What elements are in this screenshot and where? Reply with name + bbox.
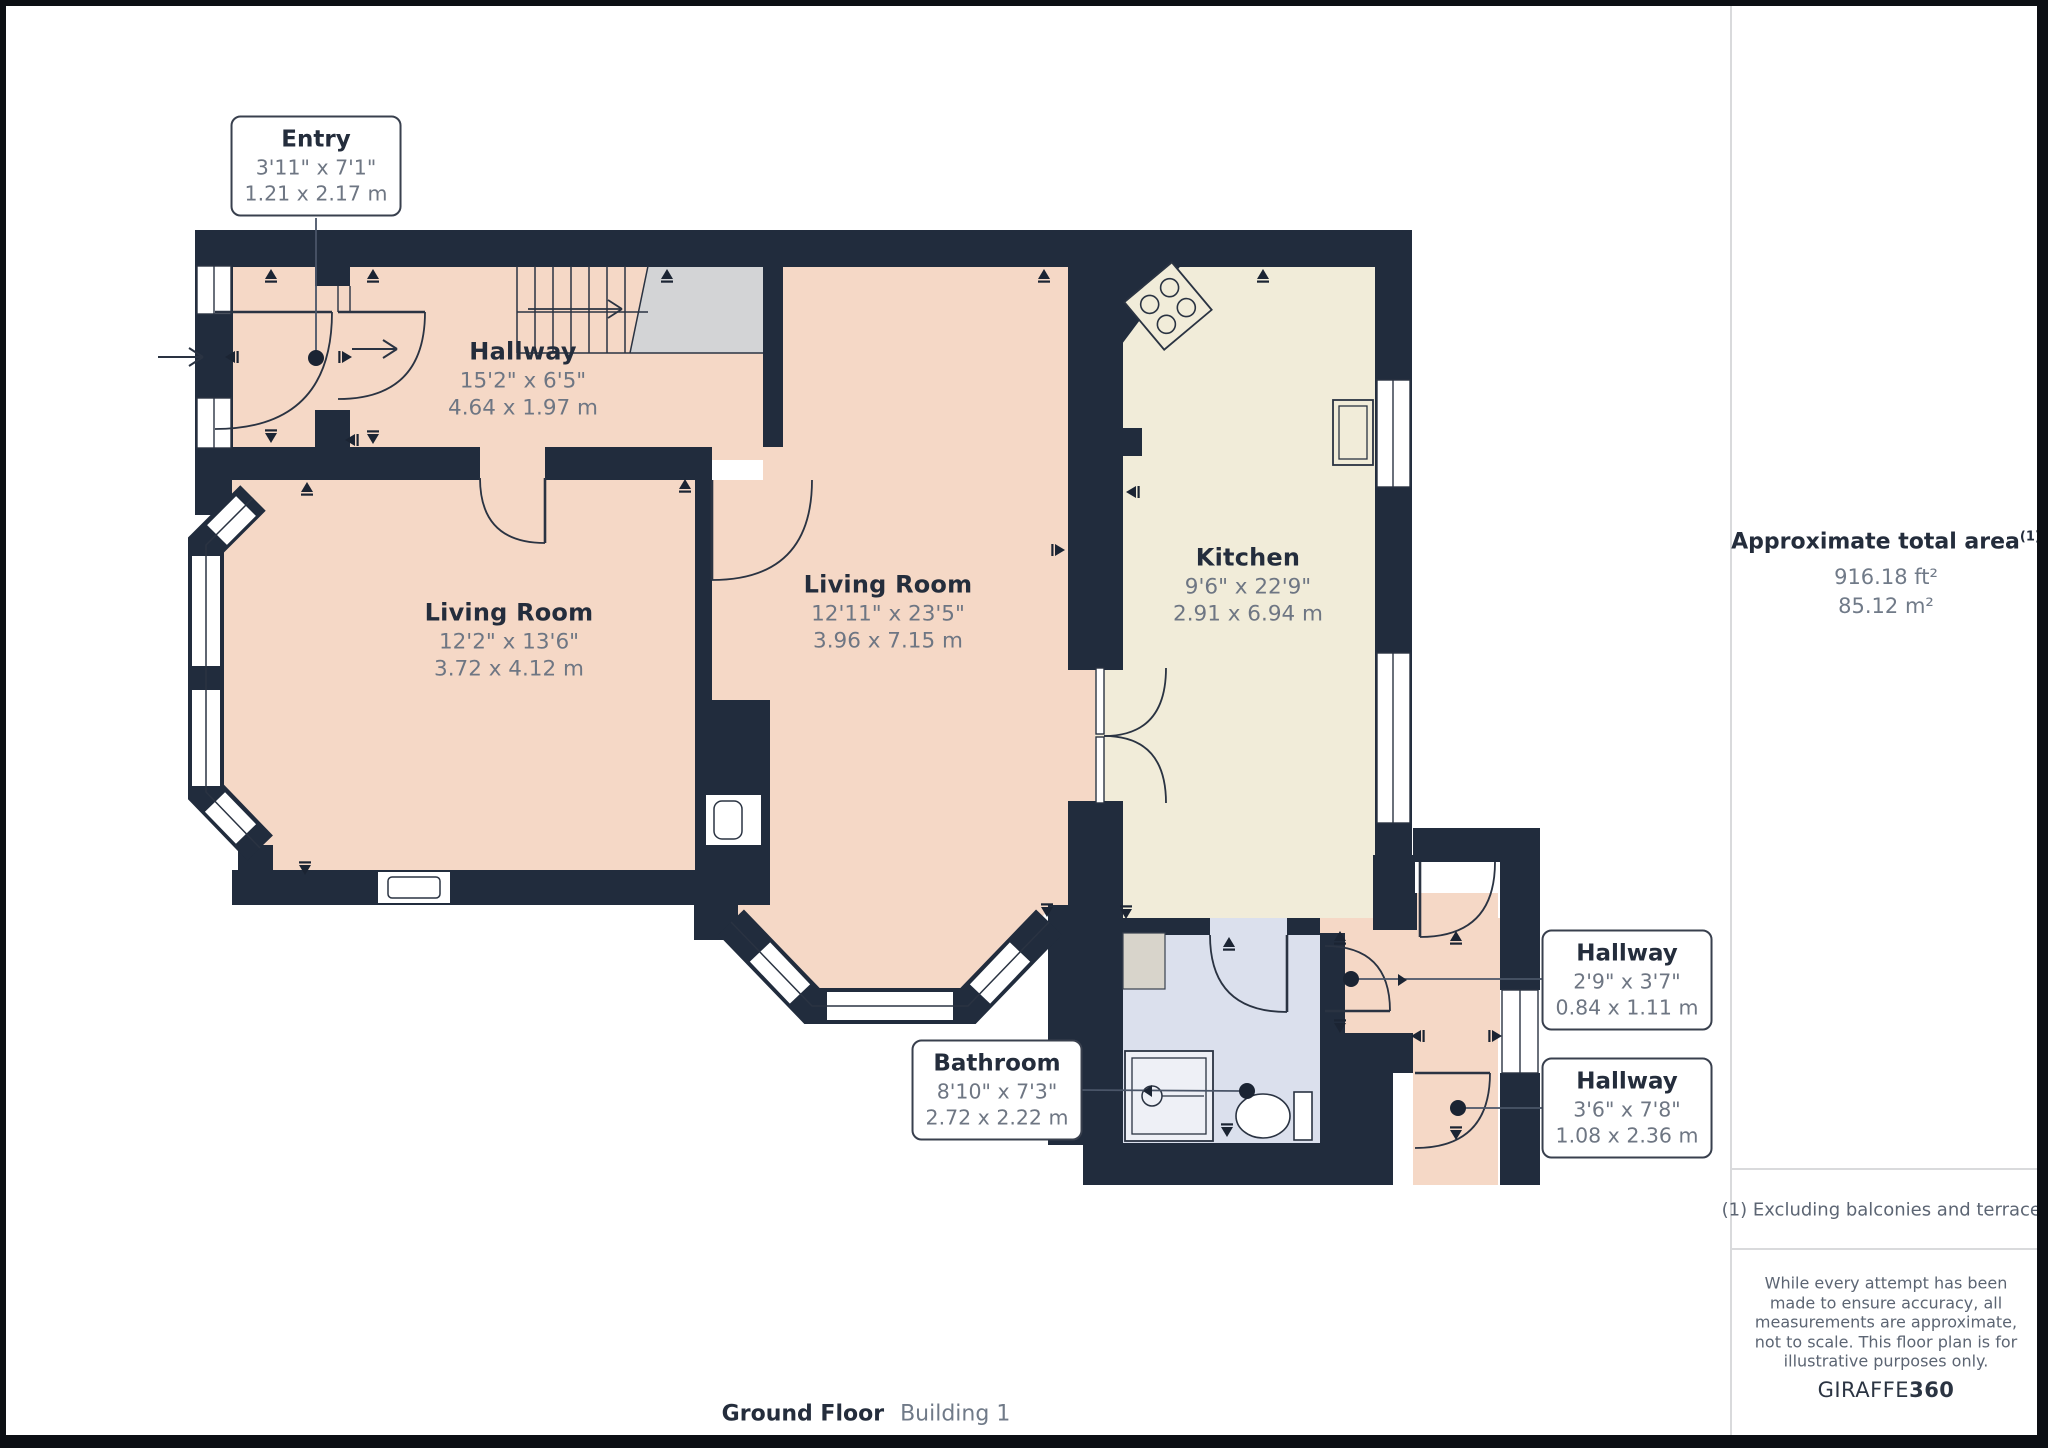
callout-metric: 1.08 x 2.36 m [1556, 1123, 1699, 1149]
stair-landing [630, 266, 763, 353]
room-label-kitchen: Kitchen 9'6" x 22'9" 2.91 x 6.94 m [1173, 543, 1323, 628]
shower [1125, 1051, 1213, 1141]
sidebar-area-ft: 916.18 ft² [1834, 565, 1938, 589]
sidebar-title: Approximate total area(1) [1731, 529, 2041, 554]
callout-entry: Entry 3'11" x 7'1" 1.21 x 2.17 m [231, 116, 402, 217]
room-metric: 4.64 x 1.97 m [448, 395, 598, 422]
room-metric: 3.96 x 7.15 m [804, 628, 973, 655]
room-title: Living Room [425, 598, 594, 629]
callout-title: Hallway [1556, 940, 1699, 969]
room-title: Living Room [804, 570, 973, 601]
sidebar-title-text: Approximate total area [1731, 530, 2020, 555]
building-name: Building 1 [900, 1402, 1010, 1427]
callout-title: Bathroom [926, 1050, 1069, 1079]
sidebar-footnote: (1) Excluding balconies and terraces [1722, 1200, 2048, 1221]
toilet [1236, 1092, 1312, 1140]
room-title: Kitchen [1173, 543, 1323, 574]
callout-title: Hallway [1556, 1068, 1699, 1097]
wall-niche-radiator [706, 795, 761, 845]
sidebar-disclaimer: While every attempt has been made to ens… [1750, 1273, 2022, 1371]
callout-metric: 1.21 x 2.17 m [245, 181, 388, 207]
callout-metric: 2.72 x 2.22 m [926, 1105, 1069, 1131]
brand-name: GIRAFFE [1818, 1378, 1910, 1402]
room-imperial: 9'6" x 22'9" [1173, 574, 1323, 601]
callout-hallway-upper: Hallway 2'9" x 3'7" 0.84 x 1.11 m [1542, 930, 1713, 1031]
callout-title: Entry [245, 126, 388, 155]
frame-left [0, 0, 6, 1448]
callout-imperial: 8'10" x 7'3" [926, 1079, 1069, 1105]
footer: Ground FloorBuilding 1 [722, 1402, 1011, 1427]
floorplan-svg [0, 0, 2048, 1448]
frame-right [2037, 0, 2048, 1448]
room-label-living-room-1: Living Room 12'2" x 13'6" 3.72 x 4.12 m [425, 598, 594, 683]
floorplan-page: Hallway 15'2" x 6'5" 4.64 x 1.97 m Livin… [0, 0, 2048, 1448]
callout-bathroom: Bathroom 8'10" x 7'3" 2.72 x 2.22 m [912, 1040, 1083, 1141]
room-imperial: 12'2" x 13'6" [425, 629, 594, 656]
brand-number: 360 [1909, 1378, 1954, 1402]
fireplace [378, 872, 450, 903]
room-imperial: 12'11" x 23'5" [804, 601, 973, 628]
callout-metric: 0.84 x 1.11 m [1556, 995, 1699, 1021]
giraffe360-logo: GIRAFFE360 [1818, 1378, 1955, 1402]
callout-imperial: 3'6" x 7'8" [1556, 1097, 1699, 1123]
frame-bottom [0, 1435, 2048, 1448]
floor-name: Ground Floor [722, 1402, 884, 1427]
room-metric: 3.72 x 4.12 m [425, 656, 594, 683]
room-label-living-room-2: Living Room 12'11" x 23'5" 3.96 x 7.15 m [804, 570, 973, 655]
sidebar-divider-footnote [1730, 1168, 2042, 1170]
sidebar-divider [1730, 6, 1732, 1436]
sidebar-divider-disclaimer [1730, 1248, 2042, 1250]
callout-imperial: 2'9" x 3'7" [1556, 969, 1699, 995]
room-metric: 2.91 x 6.94 m [1173, 601, 1323, 628]
room-label-hallway-main: Hallway 15'2" x 6'5" 4.64 x 1.97 m [448, 337, 598, 422]
room-title: Hallway [448, 337, 598, 368]
frame-top [0, 0, 2048, 6]
room-imperial: 15'2" x 6'5" [448, 368, 598, 395]
kitchen-counter-unit [1333, 400, 1373, 465]
washing-machine [1123, 933, 1165, 989]
sidebar-area-m: 85.12 m² [1838, 594, 1934, 618]
callout-hallway-lower: Hallway 3'6" x 7'8" 1.08 x 2.36 m [1542, 1058, 1713, 1159]
callout-imperial: 3'11" x 7'1" [245, 155, 388, 181]
